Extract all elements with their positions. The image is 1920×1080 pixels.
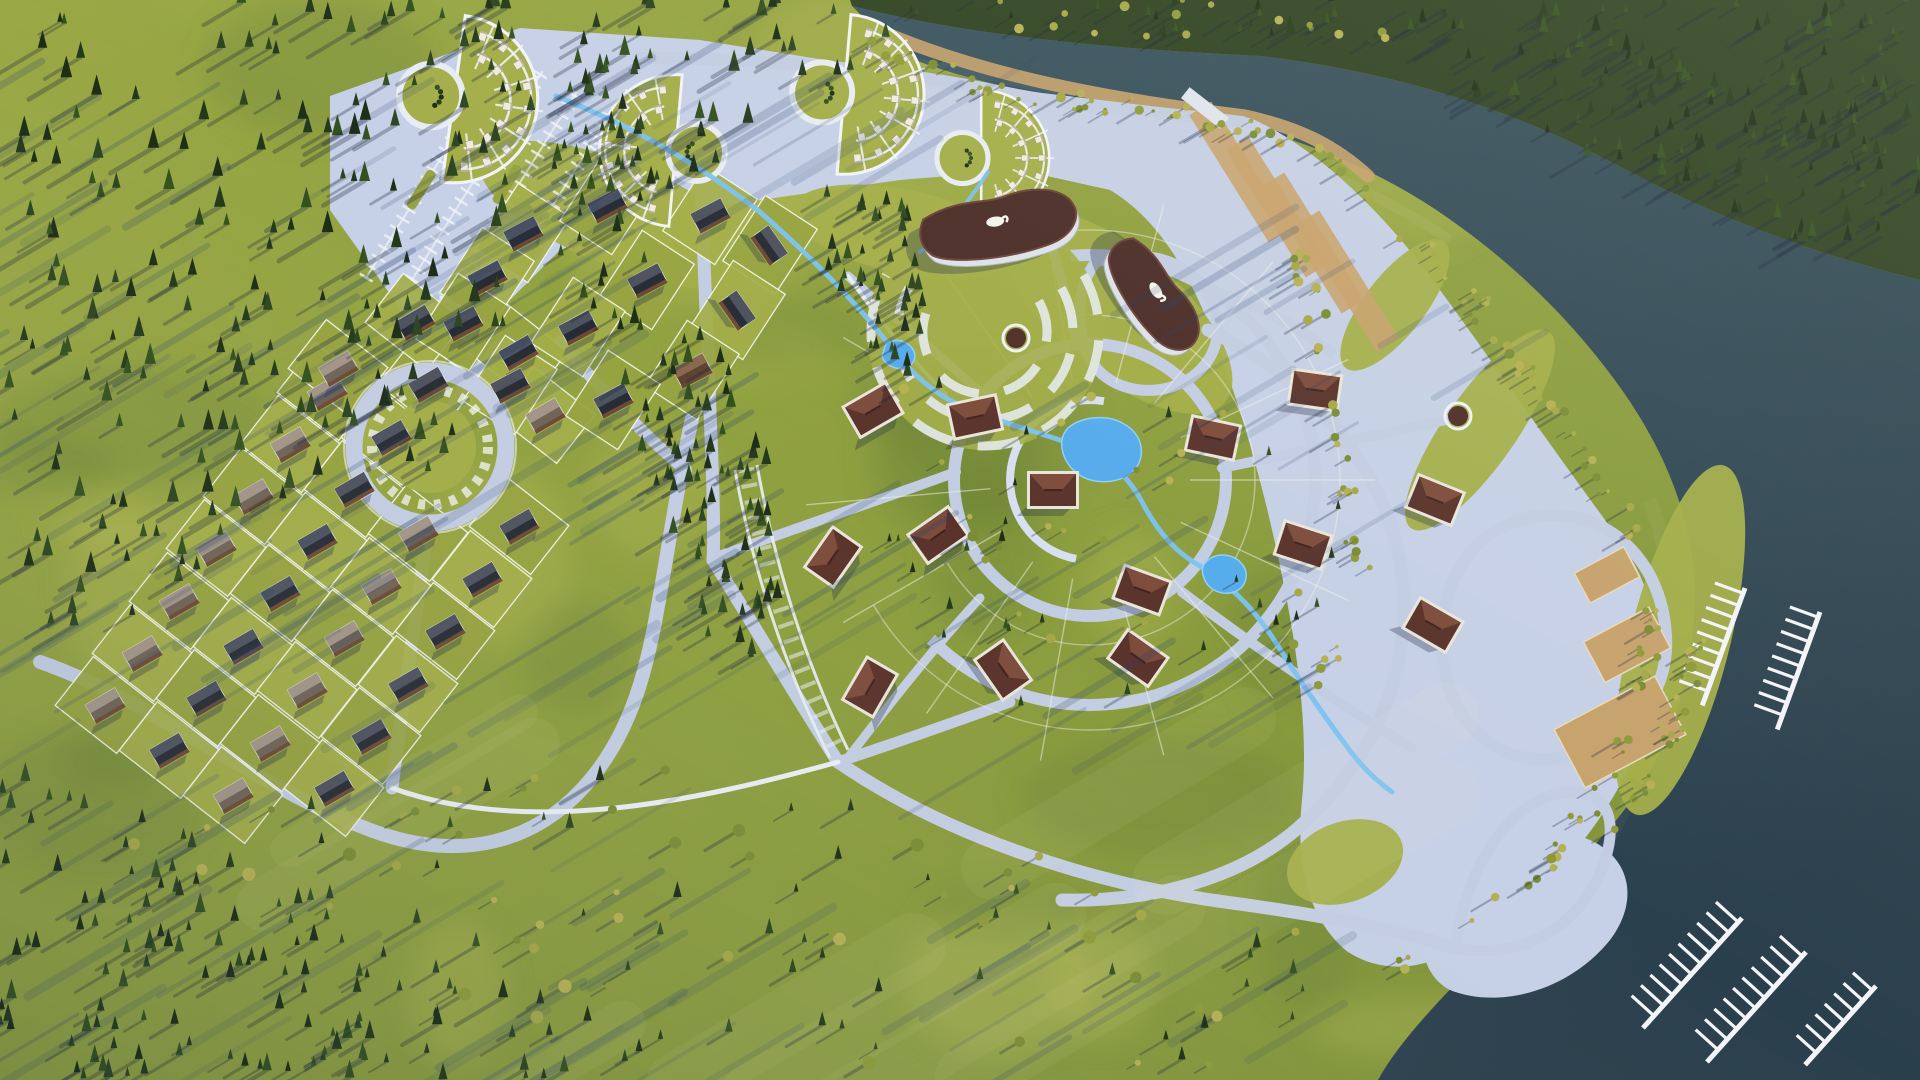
sunlight-overlay	[0, 0, 1920, 1080]
light-overlay	[0, 0, 1920, 1080]
scene-canvas	[0, 0, 1920, 1080]
aerial-masterplan-render	[0, 0, 1920, 1080]
